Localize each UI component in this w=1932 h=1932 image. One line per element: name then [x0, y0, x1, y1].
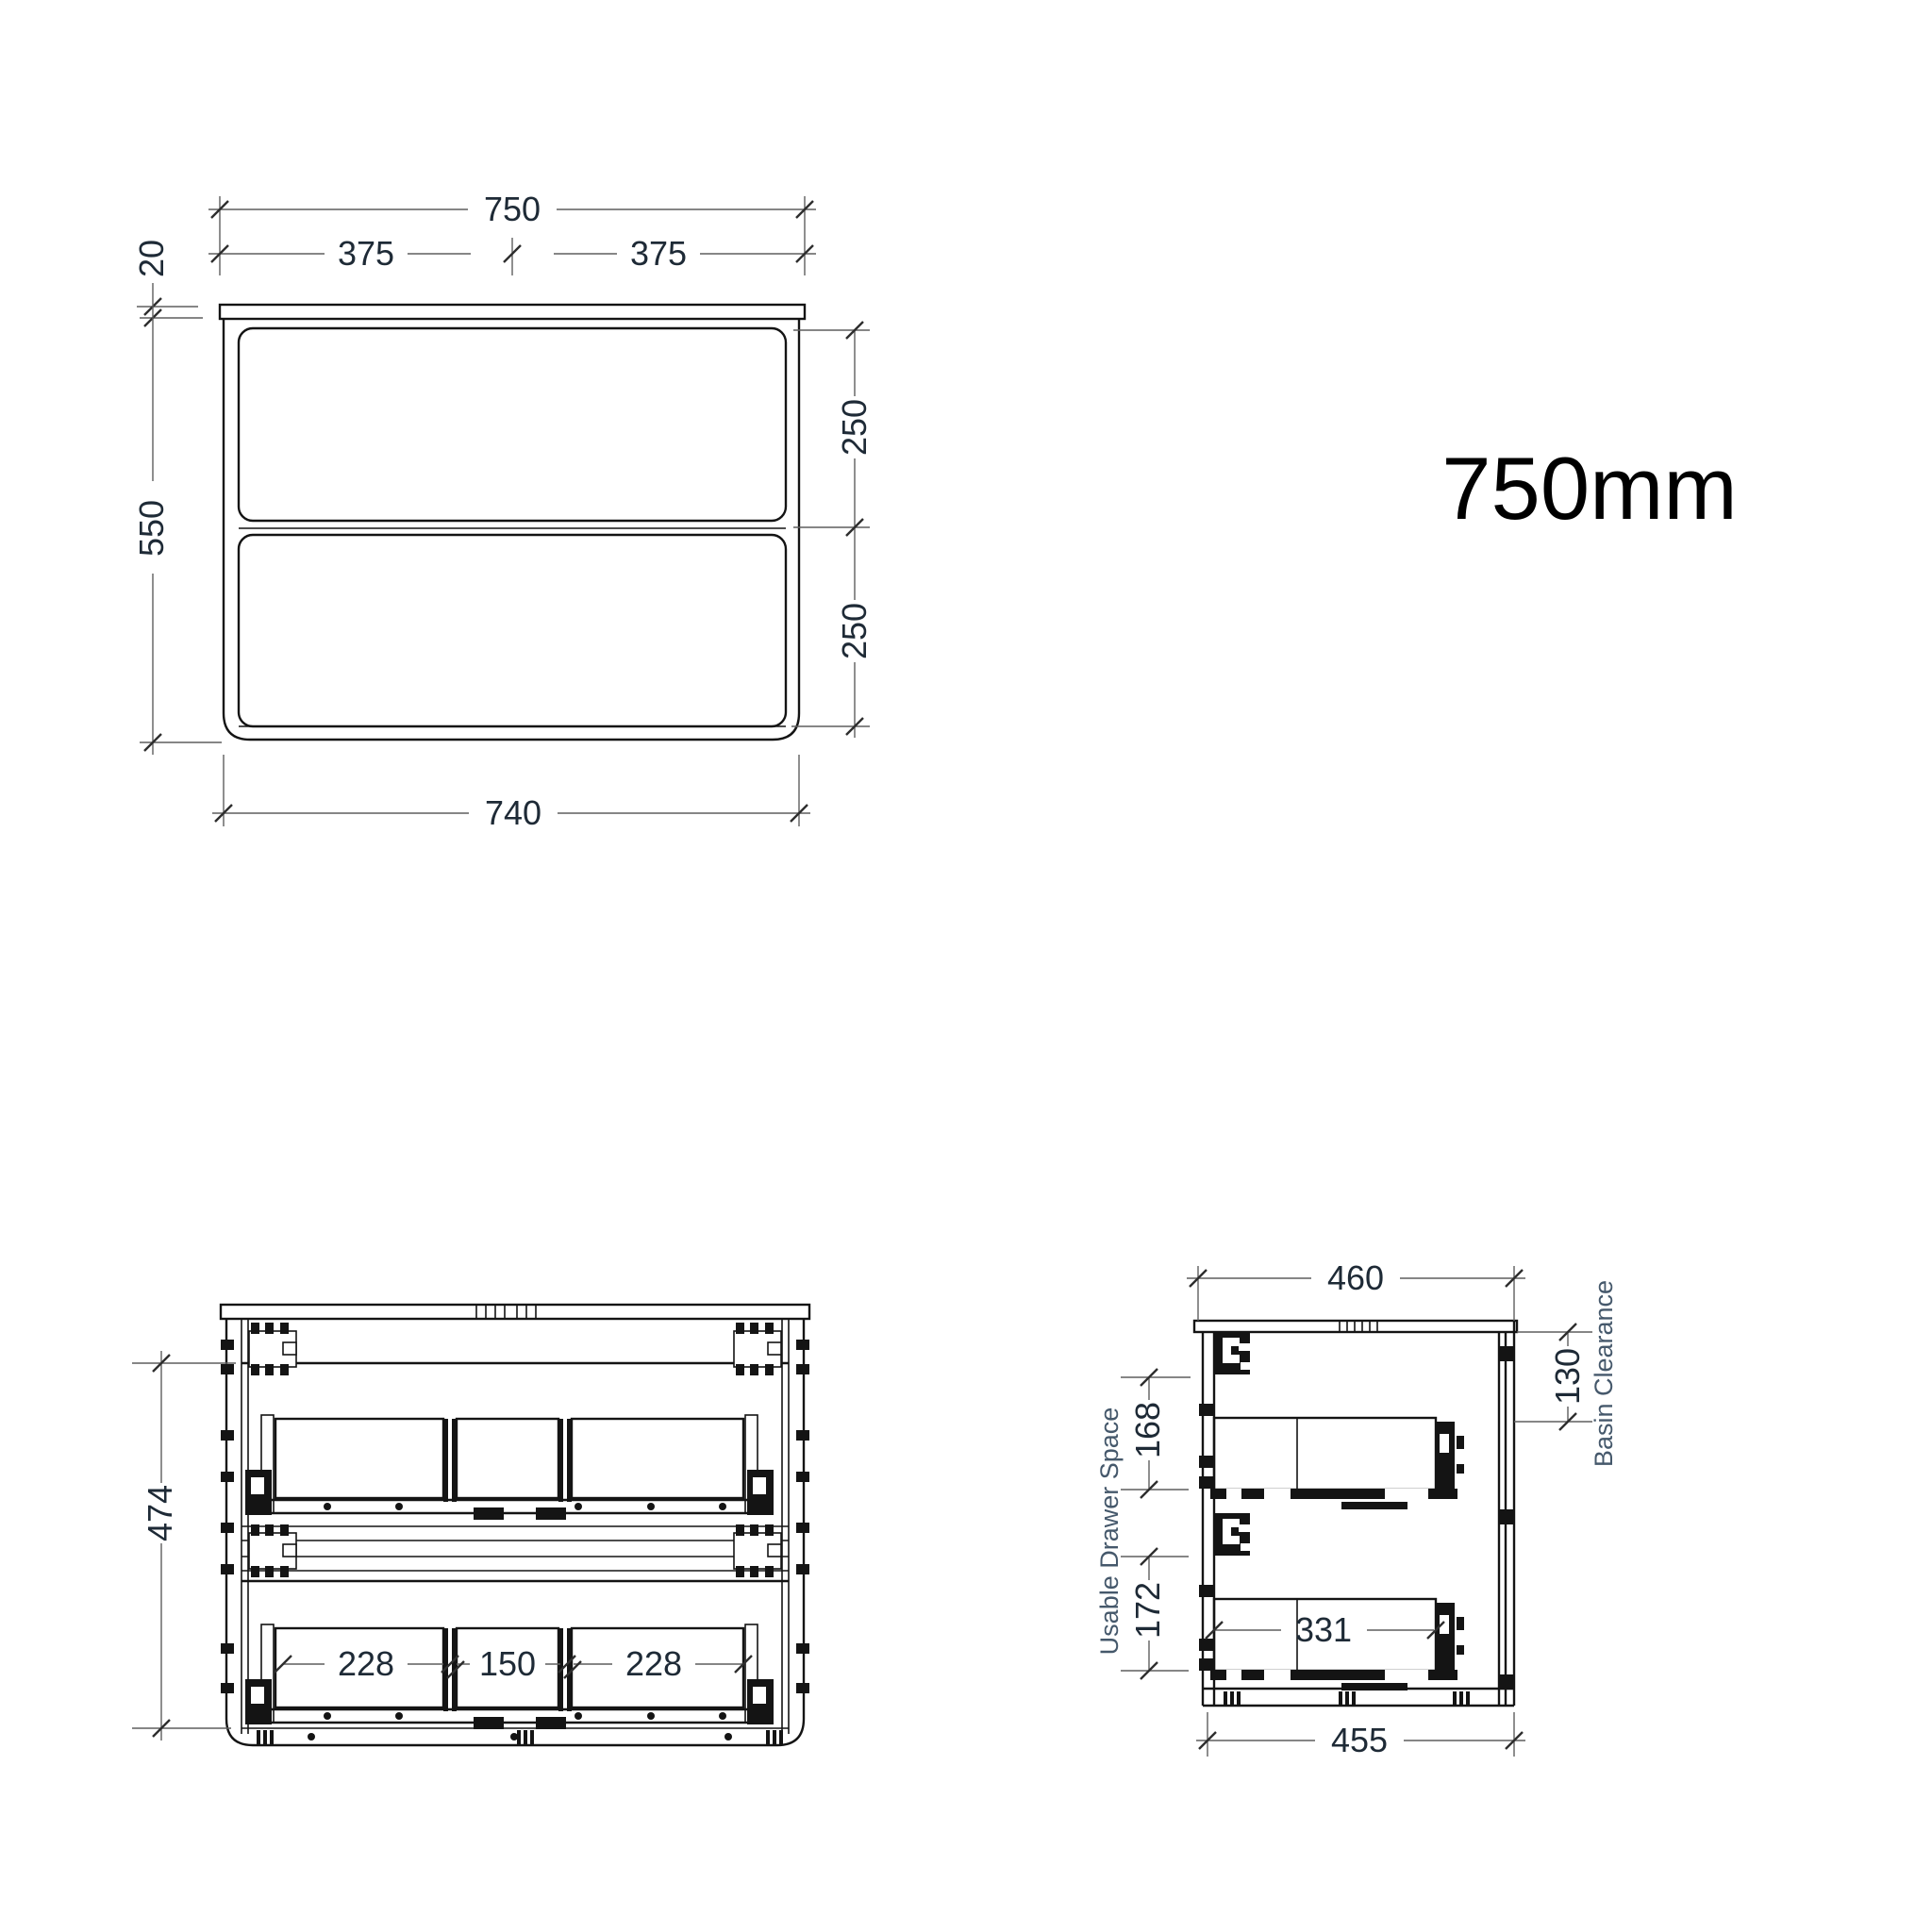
front-elevation-view: 750 375 375 20 550 250 250 — [132, 190, 874, 832]
dim-375-left-label: 375 — [338, 234, 394, 273]
dim-168-label: 168 — [1128, 1402, 1167, 1458]
cabinet-body-front — [224, 319, 799, 740]
dim-countertop-thickness: 20 — [132, 240, 203, 326]
basin-clearance-label: Basin Clearance — [1590, 1280, 1618, 1467]
countertop-side — [1194, 1321, 1517, 1332]
bottom-feet — [257, 1730, 783, 1744]
dim-overall-depth: 460 — [1187, 1258, 1525, 1321]
bottom-drawer-front-panel — [239, 535, 786, 726]
countertop-front — [220, 305, 805, 319]
dim-740-label: 740 — [485, 793, 541, 832]
product-size-label: 750mm — [1441, 439, 1737, 538]
dim-172-label: 172 — [1128, 1582, 1167, 1639]
mid-rails — [241, 1526, 789, 1581]
dim-drawer-sections: 228 150 228 — [275, 1644, 752, 1683]
dim-usable-drawer-space: Usable Drawer Space 168 172 — [1095, 1369, 1191, 1679]
dim-internal-height: 474 — [132, 1351, 236, 1740]
vanity-dimension-drawing: 750 375 375 20 550 250 250 — [0, 0, 1932, 1932]
usable-drawer-space-label: Usable Drawer Space — [1095, 1407, 1124, 1656]
dim-228-left-label: 228 — [338, 1644, 394, 1683]
dim-carcass-width: 740 — [212, 755, 810, 832]
top-drawer-assembly-side — [1210, 1332, 1464, 1509]
dim-331-label: 331 — [1295, 1610, 1352, 1649]
dim-drawer-fronts: 250 250 — [791, 322, 874, 738]
dim-half-widths: 375 375 — [208, 234, 816, 275]
dim-drawer-depth: 331 — [1206, 1610, 1444, 1649]
dim-150-label: 150 — [479, 1644, 536, 1683]
dim-250-bottom-label: 250 — [835, 603, 874, 659]
dim-460-label: 460 — [1327, 1258, 1384, 1297]
dim-375-right-label: 375 — [630, 234, 687, 273]
dim-474-label: 474 — [141, 1485, 179, 1541]
cam-clip-top-right — [734, 1323, 781, 1375]
internal-front-view: 474 228 150 228 — [132, 1305, 809, 1745]
countertop-vent-marks-side — [1340, 1321, 1377, 1332]
dim-cabinet-height: 550 — [132, 283, 222, 755]
dim-carcass-depth: 455 — [1196, 1712, 1525, 1759]
wall-connector-tabs — [221, 1340, 809, 1693]
countertop-internal — [221, 1305, 809, 1319]
dim-130-label: 130 — [1548, 1348, 1587, 1405]
technical-drawing-page: 750 375 375 20 550 250 250 — [0, 0, 1932, 1932]
bottom-drawer-assembly-side — [1210, 1513, 1464, 1690]
side-section-view: 460 130 Basin Clearance Usable Drawer Sp… — [1095, 1258, 1618, 1759]
cam-clip-top-left — [249, 1323, 296, 1375]
cam-clip-mid-right — [734, 1524, 781, 1577]
dim-550-label: 550 — [132, 500, 171, 557]
dim-basin-clearance: 130 Basin Clearance — [1514, 1280, 1618, 1467]
cam-clip-mid-left — [249, 1524, 296, 1577]
countertop-vent-marks — [476, 1305, 536, 1319]
front-strip-tabs — [1199, 1404, 1214, 1671]
top-drawer-front-panel — [239, 328, 786, 521]
dim-455-label: 455 — [1331, 1721, 1388, 1759]
dim-228-right-label: 228 — [625, 1644, 682, 1683]
top-drawer-assembly-internal — [245, 1415, 774, 1520]
dim-20-label: 20 — [132, 240, 171, 277]
dim-250-top-label: 250 — [835, 399, 874, 456]
dim-750-label: 750 — [484, 190, 541, 228]
